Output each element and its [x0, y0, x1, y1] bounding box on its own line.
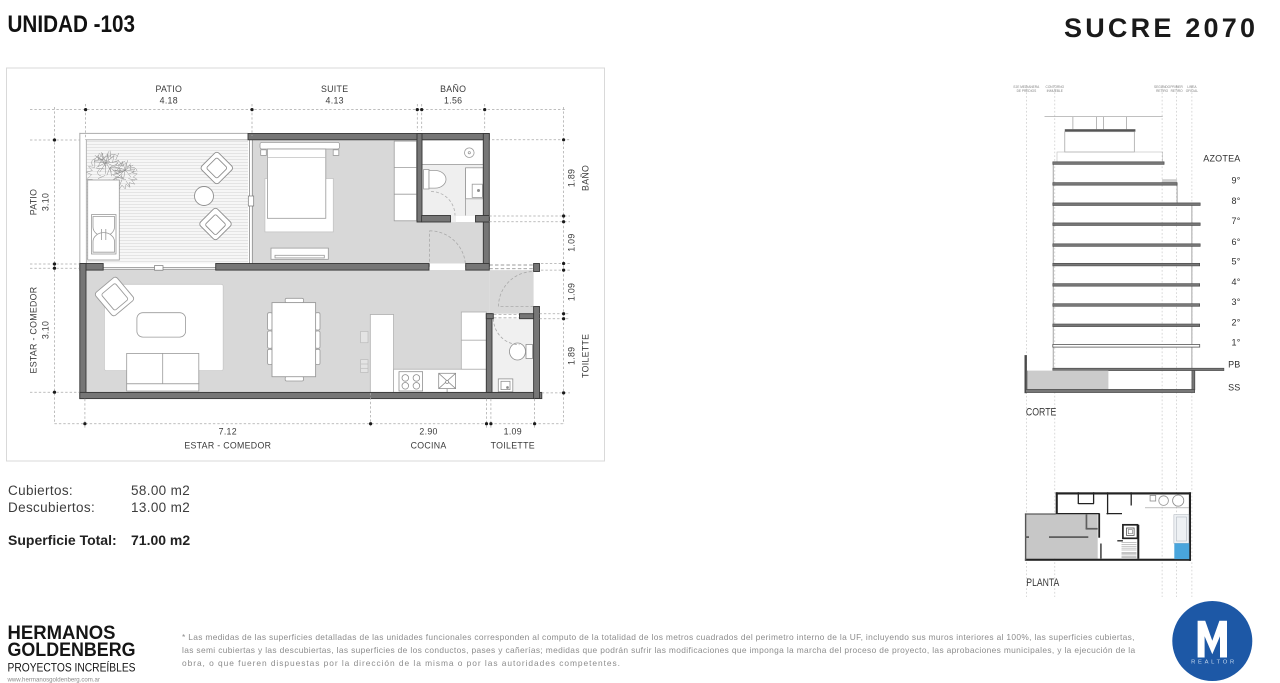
svg-text:DE PREDIOS: DE PREDIOS [1017, 89, 1037, 93]
svg-text:6°: 6° [1231, 237, 1240, 247]
svg-text:4°: 4° [1231, 277, 1240, 287]
svg-text:CORTE: CORTE [1026, 407, 1057, 419]
svg-text:PB: PB [1228, 360, 1240, 370]
svg-text:INMUEBLE: INMUEBLE [1047, 89, 1063, 93]
svg-text:PROYECTOS INCREÍBLES: PROYECTOS INCREÍBLES [8, 660, 136, 675]
svg-text:8°: 8° [1231, 196, 1240, 206]
svg-text:RETIRO: RETIRO [1156, 89, 1169, 93]
svg-text:9°: 9° [1231, 175, 1240, 185]
svg-text:SS: SS [1228, 383, 1240, 393]
svg-text:PLANTA: PLANTA [1026, 577, 1060, 589]
svg-text:5°: 5° [1231, 257, 1240, 267]
svg-text:RETIRO: RETIRO [1171, 89, 1184, 93]
svg-text:3°: 3° [1231, 297, 1240, 307]
svg-text:www.hermanosgoldenberg.com.ar: www.hermanosgoldenberg.com.ar [7, 677, 100, 683]
svg-text:AZOTEA: AZOTEA [1203, 154, 1240, 164]
svg-text:1°: 1° [1231, 338, 1240, 348]
svg-text:7°: 7° [1231, 216, 1240, 226]
svg-text:GOLDENBERG: GOLDENBERG [8, 639, 136, 661]
svg-text:OFICIAL: OFICIAL [1186, 89, 1199, 93]
svg-text:REALTOR: REALTOR [1191, 660, 1237, 666]
svg-text:2°: 2° [1231, 318, 1240, 328]
